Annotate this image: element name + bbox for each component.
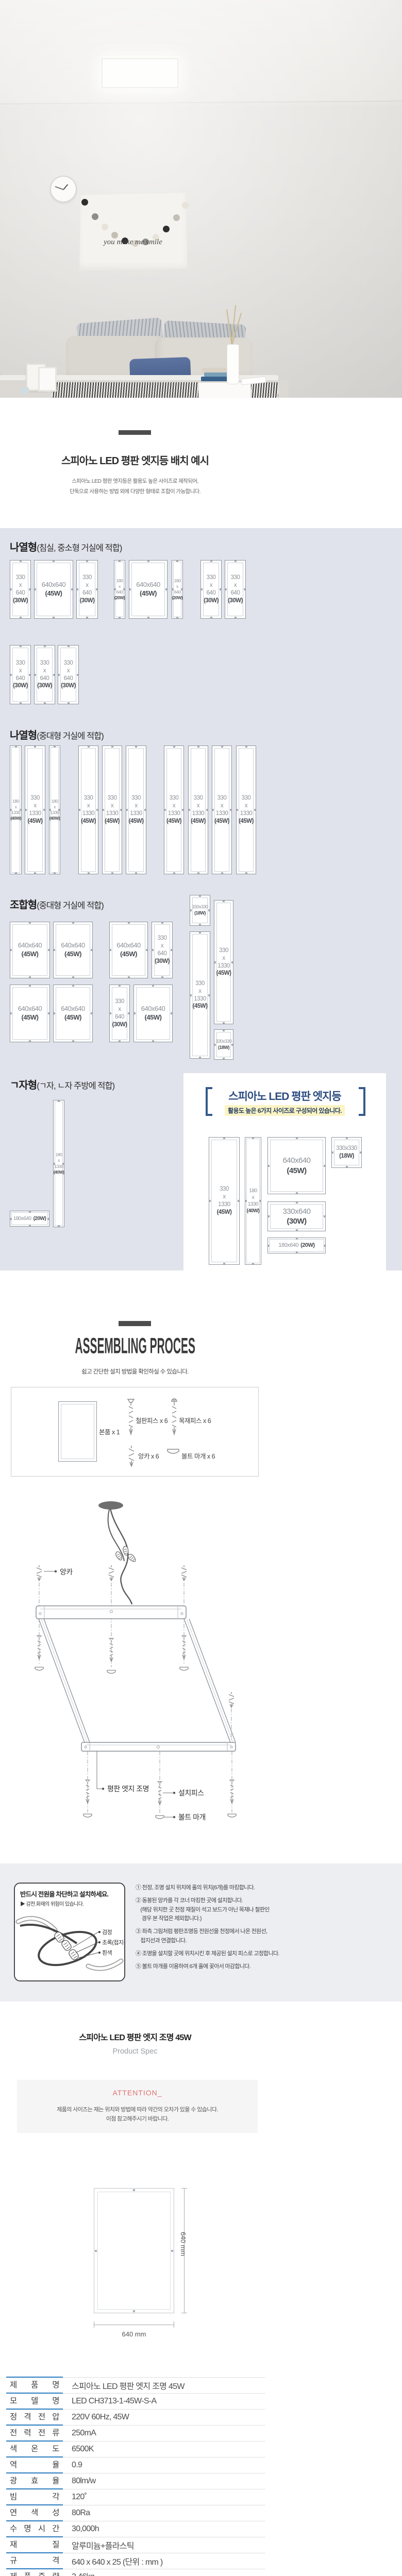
panel-size-text: 180 xyxy=(174,578,181,584)
tick xyxy=(77,588,78,590)
tick xyxy=(71,588,73,590)
panel-size-text: (40W) xyxy=(49,816,60,821)
tick xyxy=(268,1245,270,1247)
size-panel: 640x640(45W) xyxy=(267,1137,326,1194)
install-screw-icon xyxy=(181,1636,187,1659)
spec-value-cell: 250mA xyxy=(63,2426,265,2442)
screw-label: 설치피스 xyxy=(178,1789,204,1797)
panel-size-text: 1330 xyxy=(248,1201,258,1208)
tick xyxy=(129,588,131,590)
panel-size-text: 640 xyxy=(231,589,240,597)
spec-label-cell: 규 격 xyxy=(6,2553,63,2569)
panel-inner: 330x1330(45W) xyxy=(216,903,231,1022)
dim-height-label: 640 mm xyxy=(179,2232,187,2256)
tick xyxy=(210,561,212,562)
panel-inner: 330x640(30W) xyxy=(227,563,243,616)
panel-inner: 330x1330(45W) xyxy=(192,934,208,1056)
tick xyxy=(48,1012,49,1014)
size-panel: 180x640(20W) xyxy=(10,1211,49,1227)
frame-top-bar xyxy=(36,1606,186,1619)
spec-label-cell: 제 품 명 xyxy=(6,2378,63,2394)
panel-inner: 330x1330(45W) xyxy=(81,748,96,872)
spec-label-text: 광 효 율 xyxy=(10,2476,59,2486)
tick xyxy=(176,561,178,562)
anchor-icon xyxy=(127,1445,136,1467)
bolt-cap-icon xyxy=(35,1667,43,1670)
tick xyxy=(223,901,225,902)
size-panel: 330x1330(45W) xyxy=(188,745,208,874)
spec-label-cell: 수 명 시 간 xyxy=(6,2521,63,2537)
panel-size-text: x xyxy=(15,804,17,810)
tick xyxy=(95,2250,97,2252)
picture-frame-small xyxy=(38,367,57,392)
anchor-icon xyxy=(37,1565,42,1581)
install-screw-icon xyxy=(229,1780,234,1803)
size-panel: 640x640(45W) xyxy=(10,985,50,1042)
intro-title: 스피아노 LED 평판 엣지등 배치 예시 xyxy=(0,452,270,467)
panel-inner: 330x1330(45W) xyxy=(166,748,181,872)
spec-row: 연 색 성80Ra xyxy=(6,2505,265,2521)
panel-size-text: 330 xyxy=(231,574,240,582)
spec-value-text: 220V 60Hz, 45W xyxy=(72,2413,129,2422)
size-panel: 330x640(30W) xyxy=(10,560,31,619)
bolt-cap-icon xyxy=(83,1814,92,1817)
panel-size-text: (45W) xyxy=(22,950,39,959)
tick xyxy=(47,1218,49,1220)
panel-inner: 330x640(30W) xyxy=(12,648,28,702)
tick xyxy=(86,561,88,562)
spec-label-text: 제 품 중 량 xyxy=(10,2572,59,2576)
panel-size-text: 640 xyxy=(158,950,167,958)
size-panel: 330x1330(45W) xyxy=(236,745,256,874)
tick xyxy=(43,809,45,811)
panel-size-text: 330 xyxy=(242,794,251,802)
tick xyxy=(245,1200,247,1202)
attention-title: ATTENTION_ xyxy=(17,2089,258,2097)
panel-size-text: 640x640 xyxy=(42,581,65,589)
tick xyxy=(181,588,182,590)
tick xyxy=(77,674,78,676)
panel-size-text: 330 xyxy=(195,980,205,988)
tick xyxy=(54,1163,55,1165)
section-divider-bar xyxy=(119,1321,151,1326)
panel-inner: 640x640(45W) xyxy=(12,987,47,1040)
spec-label-text: 수 명 시 간 xyxy=(10,2524,59,2534)
panel-inner: 180x640(20W) xyxy=(11,1212,48,1225)
tick xyxy=(79,809,80,811)
tick xyxy=(44,702,46,704)
tick xyxy=(225,588,227,590)
tick xyxy=(68,646,70,647)
panel-size-text: x xyxy=(19,667,22,675)
product-spec-label: Product Spec xyxy=(0,2047,270,2056)
panel-size-text: 180 xyxy=(52,799,58,804)
tick xyxy=(29,976,31,978)
spec-label-text: 규 격 xyxy=(10,2556,59,2566)
tick xyxy=(147,617,149,618)
tick xyxy=(111,872,113,874)
tick xyxy=(252,1138,254,1139)
clock-minute-hand xyxy=(55,186,64,190)
tick xyxy=(221,746,223,748)
tick xyxy=(25,809,27,811)
size-panel: 330x1330(45W) xyxy=(214,900,233,1024)
spec-table: 제 품 명스피아노 LED 평판 엣지 조명 45W모 델 명LED CH371… xyxy=(6,2377,265,2576)
tick xyxy=(48,949,49,951)
tick xyxy=(88,872,90,874)
spec-value-cell: LED CH3713-1-45W-S-A xyxy=(63,2394,265,2410)
panel-size-text: (30W) xyxy=(61,682,76,690)
panel-size-text: 1330 xyxy=(106,810,119,818)
panel-inner: 640x640(45W) xyxy=(56,987,90,1040)
panel-size-text: (45W) xyxy=(28,818,43,825)
spec-row: 제 품 명스피아노 LED 평판 엣지 조명 45W xyxy=(6,2378,265,2394)
tick xyxy=(210,617,212,618)
spec-row: 전 력 전 류250mA xyxy=(6,2426,265,2442)
panel-size-text: 1330 xyxy=(51,810,59,816)
panel-size-text: 640x640 xyxy=(141,1005,165,1013)
tick xyxy=(212,809,214,811)
section-label-rest: (중대형 거실에 적합) xyxy=(37,901,104,910)
leader-dot xyxy=(173,1816,175,1818)
panel-size-text: (20W) xyxy=(33,1215,46,1222)
tick xyxy=(10,949,12,951)
panel-size-text: (45W) xyxy=(217,1209,232,1216)
size-panel: 330x640(30W) xyxy=(109,985,130,1042)
tick xyxy=(220,588,221,590)
leader-dot xyxy=(98,1952,100,1954)
spec-value-text: 스피아노 LED 평판 엣지 조명 45W xyxy=(72,2379,185,2392)
panel-size-text: 330 xyxy=(207,574,216,582)
panel-size-text: 330 xyxy=(115,998,124,1006)
panel-inner: 330x1330(45W) xyxy=(27,748,43,872)
panel-inner: 330x1330(45W) xyxy=(128,748,144,872)
tick xyxy=(29,1211,31,1213)
leader-dot xyxy=(98,1941,100,1943)
panel-inner: 640x640(45W) xyxy=(131,563,165,616)
callout-highlight: 활용도 높은 6가지 사이즈로 구성되어 있습니다. xyxy=(225,1105,345,1116)
tick xyxy=(209,1200,211,1202)
panel-size-text: (20W) xyxy=(172,595,183,601)
bolt-cap-label: 볼트 마개 x 6 xyxy=(181,1451,215,1461)
panel-inner: 330x330(18W) xyxy=(216,1032,231,1057)
tick xyxy=(190,994,192,996)
panel-inner: 640x640(45W) xyxy=(56,924,90,976)
product-title: 스피아노 LED 평판 엣지 조명 45W xyxy=(0,2030,270,2043)
tick xyxy=(223,1022,225,1024)
tick xyxy=(35,674,36,676)
tick xyxy=(15,872,17,874)
tick xyxy=(173,872,175,874)
tick xyxy=(34,746,36,748)
section-label-rest: (중대형 거실에 적합) xyxy=(37,732,104,741)
panel-size-text: 640x640 xyxy=(136,581,160,589)
tick xyxy=(10,588,12,590)
size-panel: 180x1330(40W) xyxy=(49,745,60,874)
panel-size-text: 180 xyxy=(116,578,123,584)
panel-size-text: (30W) xyxy=(37,682,52,690)
panel-size-text: 330 xyxy=(16,659,25,667)
tick xyxy=(58,1100,60,1102)
frame-side-rails xyxy=(39,1619,236,1742)
panel-size-text: x xyxy=(221,802,223,810)
tick xyxy=(20,646,22,647)
dim-line-horizontal xyxy=(94,2325,174,2325)
panel-size-text: 640x640 xyxy=(116,941,140,950)
panel-size-text: 330 xyxy=(64,659,73,667)
tick xyxy=(346,1166,348,1167)
size-panel: 330x1330(45W) xyxy=(164,745,184,874)
panel-size-text: 640 xyxy=(174,589,181,595)
tick xyxy=(91,949,92,951)
panel-size-text: x xyxy=(58,1158,60,1163)
panel-inner: 180x640(20W) xyxy=(173,562,181,617)
tick xyxy=(29,922,31,924)
tick xyxy=(199,1057,201,1058)
spec-label-cell: 연 색 성 xyxy=(6,2505,63,2521)
tick xyxy=(197,746,199,748)
banner-text: you make me smile xyxy=(78,238,188,247)
panel-size-text: (45W) xyxy=(287,1166,306,1176)
panel-size-text: 330 xyxy=(219,947,228,955)
panel-size-text: x xyxy=(252,1194,255,1201)
anchor-label: 앙카 xyxy=(60,1568,73,1576)
tick xyxy=(114,588,116,590)
frame-side-inner xyxy=(41,1619,233,1742)
tick xyxy=(165,588,167,590)
wire-green-label: 초록(접지선) xyxy=(102,1939,124,1946)
tick xyxy=(346,1138,348,1139)
panel-inner: 330x640(30W) xyxy=(154,924,170,976)
vase xyxy=(227,344,239,384)
tick xyxy=(91,1012,92,1014)
install-step: ① 천정, 조명 설치 위치에 홀의 위치(6개)를 마킹합니다. xyxy=(136,1884,265,1893)
tick xyxy=(152,949,154,951)
diagram-section-label: 나열형(침실, 중소형 거실에 적합) xyxy=(10,539,122,554)
spec-label-text: 재 질 xyxy=(10,2540,59,2550)
anchor-icon xyxy=(229,1692,234,1707)
tick xyxy=(126,809,128,811)
panel-size-text: 330x330 xyxy=(336,1145,357,1153)
tick xyxy=(123,588,125,590)
panel-size-text: 330 xyxy=(108,794,117,802)
tick xyxy=(223,1058,225,1059)
spec-value-text: 80lm/w xyxy=(72,2477,95,2486)
tick xyxy=(147,561,149,562)
size-panel: 330x330(18W) xyxy=(214,1029,233,1060)
panel-size-text: 330 xyxy=(194,794,203,802)
panel-size-text: 330 xyxy=(30,794,40,802)
product-detail-page: you make me smile 스피아노 LED 평판 엣지등 배치 예시 … xyxy=(0,0,402,2576)
leader-dot xyxy=(98,1931,100,1933)
cup xyxy=(21,387,29,394)
spec-value-cell: 80lm/w xyxy=(63,2473,265,2489)
panel-inner: 330x1330(45W) xyxy=(191,748,206,872)
panel-size-text: (45W) xyxy=(239,818,254,825)
panel-size-text: x xyxy=(86,582,88,589)
tick xyxy=(146,949,147,951)
size-panel: 330x640(30W) xyxy=(267,1201,326,1231)
size-panel: 330x640(30W) xyxy=(225,560,246,619)
tick xyxy=(20,617,22,618)
tick xyxy=(223,1138,225,1139)
spec-row: 모 델 명LED CH3713-1-45W-S-A xyxy=(6,2394,265,2410)
size-panel: 640x640(45W) xyxy=(34,560,73,619)
tick xyxy=(35,588,36,590)
wire-connection-illustration: 검정 초록(접지선) 흰색 xyxy=(15,1910,124,1979)
panel-inner: 640x640(45W) xyxy=(270,1140,323,1192)
panel-size-text: (45W) xyxy=(22,1013,39,1022)
assembling-title: ASSEMBLING PROCES xyxy=(75,1334,195,1359)
tick xyxy=(86,617,88,618)
panel-size-text: (45W) xyxy=(81,818,96,825)
spec-value-text: 120˚ xyxy=(72,2493,87,2502)
panel-inner: 180x1330(40W) xyxy=(11,747,20,873)
panel-size-text: 1330 xyxy=(55,1164,63,1170)
spec-value-text: 2.46kg xyxy=(72,2572,94,2576)
spec-value-cell: 80Ra xyxy=(63,2505,265,2521)
tick xyxy=(128,976,130,978)
light-label: 평판 엣지 조명 xyxy=(107,1785,149,1793)
panel-inner: 330x640(30W) xyxy=(12,563,28,616)
tick xyxy=(49,809,51,811)
spec-label-text: 전 력 전 류 xyxy=(10,2428,59,2438)
spec-label-cell: 제 품 중 량 xyxy=(6,2569,63,2576)
power-warning-box: 반드시 전원을 차단하고 설치하세요. ▶ 감전.화재의 위험이 있습니다. 검… xyxy=(14,1883,125,1981)
panel-size-text: 1330 xyxy=(192,810,205,818)
panel-size-text: 1330 xyxy=(218,1201,230,1209)
panel-size-text: 640 xyxy=(40,675,49,683)
spec-value-text: 80Ra xyxy=(72,2509,90,2518)
spec-value-text: 0.9 xyxy=(72,2461,82,2470)
wire-white-label: 흰색 xyxy=(102,1950,112,1956)
tick xyxy=(111,746,113,748)
spec-value-text: 알루미늄+플라스틱 xyxy=(72,2539,134,2551)
tick xyxy=(53,674,55,676)
panel-size-text: (45W) xyxy=(216,970,231,977)
panel-size-text: 1330 xyxy=(194,995,206,1003)
spec-label-text: 색 온 도 xyxy=(10,2444,59,2454)
install-screw-icon xyxy=(85,1780,90,1803)
section-label-bold: 나열형 xyxy=(10,730,37,741)
tick xyxy=(214,1044,216,1046)
panel-size-text: 180x640 xyxy=(13,1215,31,1222)
intro-subtitle-line2: 단독으로 사용하는 방법 외에 다양한 형태로 조합이 가능합니다. xyxy=(0,487,270,495)
diagram-section-label: ㄱ자형(ㄱ자, ㄴ자 주방에 적합) xyxy=(10,1077,114,1092)
size-panel: 640x640(45W) xyxy=(133,985,173,1042)
panel-size-text: (45W) xyxy=(145,1013,162,1022)
tick xyxy=(208,909,210,911)
wood-screw-label: 목재피스 x 6 xyxy=(179,1415,211,1425)
panel-inner: 180x1330(40W) xyxy=(55,1101,63,1226)
tick xyxy=(144,809,146,811)
tick xyxy=(20,702,22,704)
attention-box: ATTENTION_ 제품의 사이즈는 재는 위치와 방법에 따라 약간의 오차… xyxy=(17,2080,258,2133)
panel-inner xyxy=(97,2192,171,2310)
size-panel: 180x640(20W) xyxy=(267,1238,326,1253)
panel-size-text: (30W) xyxy=(228,597,243,605)
tick xyxy=(44,646,46,647)
panel-inner: 330x330(18W) xyxy=(192,897,208,923)
tick xyxy=(268,1215,270,1217)
spec-label-text: 모 델 명 xyxy=(10,2396,59,2406)
tick xyxy=(234,617,237,618)
panel-inner: 330x330(18W) xyxy=(334,1140,359,1165)
tick xyxy=(29,1040,31,1042)
dim-cap xyxy=(94,2321,94,2328)
bolt-cap-icon xyxy=(228,1814,236,1817)
tick xyxy=(119,985,121,987)
spec-label-cell: 모 델 명 xyxy=(6,2394,63,2410)
panel-size-text: x xyxy=(173,802,175,810)
panel-size-text: 640 xyxy=(207,589,216,597)
panel-size-text: x xyxy=(197,802,199,810)
panel-size-text: (20W) xyxy=(114,595,125,601)
tick xyxy=(20,561,22,562)
size-panel: 180x1330(40W) xyxy=(53,1100,64,1227)
panel-size-text: (40W) xyxy=(54,1170,64,1175)
tick xyxy=(223,1263,225,1264)
tick xyxy=(29,985,31,987)
install-screw-icon xyxy=(37,1636,42,1659)
tick xyxy=(237,809,238,811)
bolt-cap-icon xyxy=(180,1667,188,1670)
tick xyxy=(201,588,203,590)
size-panel: 180x1330(40W) xyxy=(245,1137,261,1265)
section-label-bold: 조합형 xyxy=(10,900,37,911)
panel-inner: 640x640(45W) xyxy=(112,924,145,976)
tick xyxy=(119,1040,121,1042)
tick xyxy=(234,561,237,562)
bolt-cap-icon xyxy=(166,1448,180,1457)
panel-inner: 330x1330(45W) xyxy=(105,748,120,872)
spec-label-cell: 광 효 율 xyxy=(6,2473,63,2489)
panel-size-text: (18W) xyxy=(218,1045,229,1051)
panel-inner: 330x640(30W) xyxy=(60,648,76,702)
spec-value-cell: 스피아노 LED 평판 엣지 조명 45W xyxy=(63,2378,265,2394)
size-panel: 640x640(45W) xyxy=(129,560,167,619)
tick xyxy=(161,976,163,978)
panel-size-text: 640x640 xyxy=(18,1005,42,1013)
panel-size-text: 180x640 xyxy=(278,1242,298,1249)
panel-size-text: 180 xyxy=(12,799,19,804)
tick xyxy=(173,746,175,748)
panel-size-text: 1330 xyxy=(11,810,20,816)
size-panel: 330x640(30W) xyxy=(34,645,55,704)
spec-value-cell: 2.46kg xyxy=(63,2569,265,2576)
panel-size-text: 640 xyxy=(115,1013,124,1021)
size-panel: 180x640(20W) xyxy=(114,560,125,619)
panel-size-text: 330 xyxy=(170,794,179,802)
leader-dot xyxy=(55,1570,57,1572)
light-leader-line xyxy=(97,1751,102,1789)
panel-size-text: (45W) xyxy=(140,589,157,598)
spec-label-text: 연 색 성 xyxy=(10,2508,59,2518)
spec-row: 제 품 중 량2.46kg xyxy=(6,2569,265,2576)
install-steps-list: ① 천정, 조명 설치 위치에 홀의 위치(6개)를 마킹합니다.② 동봉된 앙… xyxy=(136,1884,265,1975)
spec-value-cell: 220V 60Hz, 45W xyxy=(63,2410,265,2426)
bolt-cap-icon xyxy=(156,1816,164,1819)
tick xyxy=(324,1165,325,1167)
panel-size-text: 640x640 xyxy=(282,1156,310,1166)
install-step: ④ 조명을 설치할 곳에 위치시킨 후 제공된 설치 피스로 고정합니다. xyxy=(136,1950,265,1959)
dim-cap xyxy=(174,2321,174,2328)
size-panel: 330x1330(45W) xyxy=(78,745,98,874)
tick xyxy=(72,1040,74,1042)
section-label-rest: (ㄱ자, ㄴ자 주방에 적합) xyxy=(37,1081,114,1091)
panel-size-text: 640 xyxy=(82,589,92,597)
panel-size-text: (30W) xyxy=(13,682,28,690)
